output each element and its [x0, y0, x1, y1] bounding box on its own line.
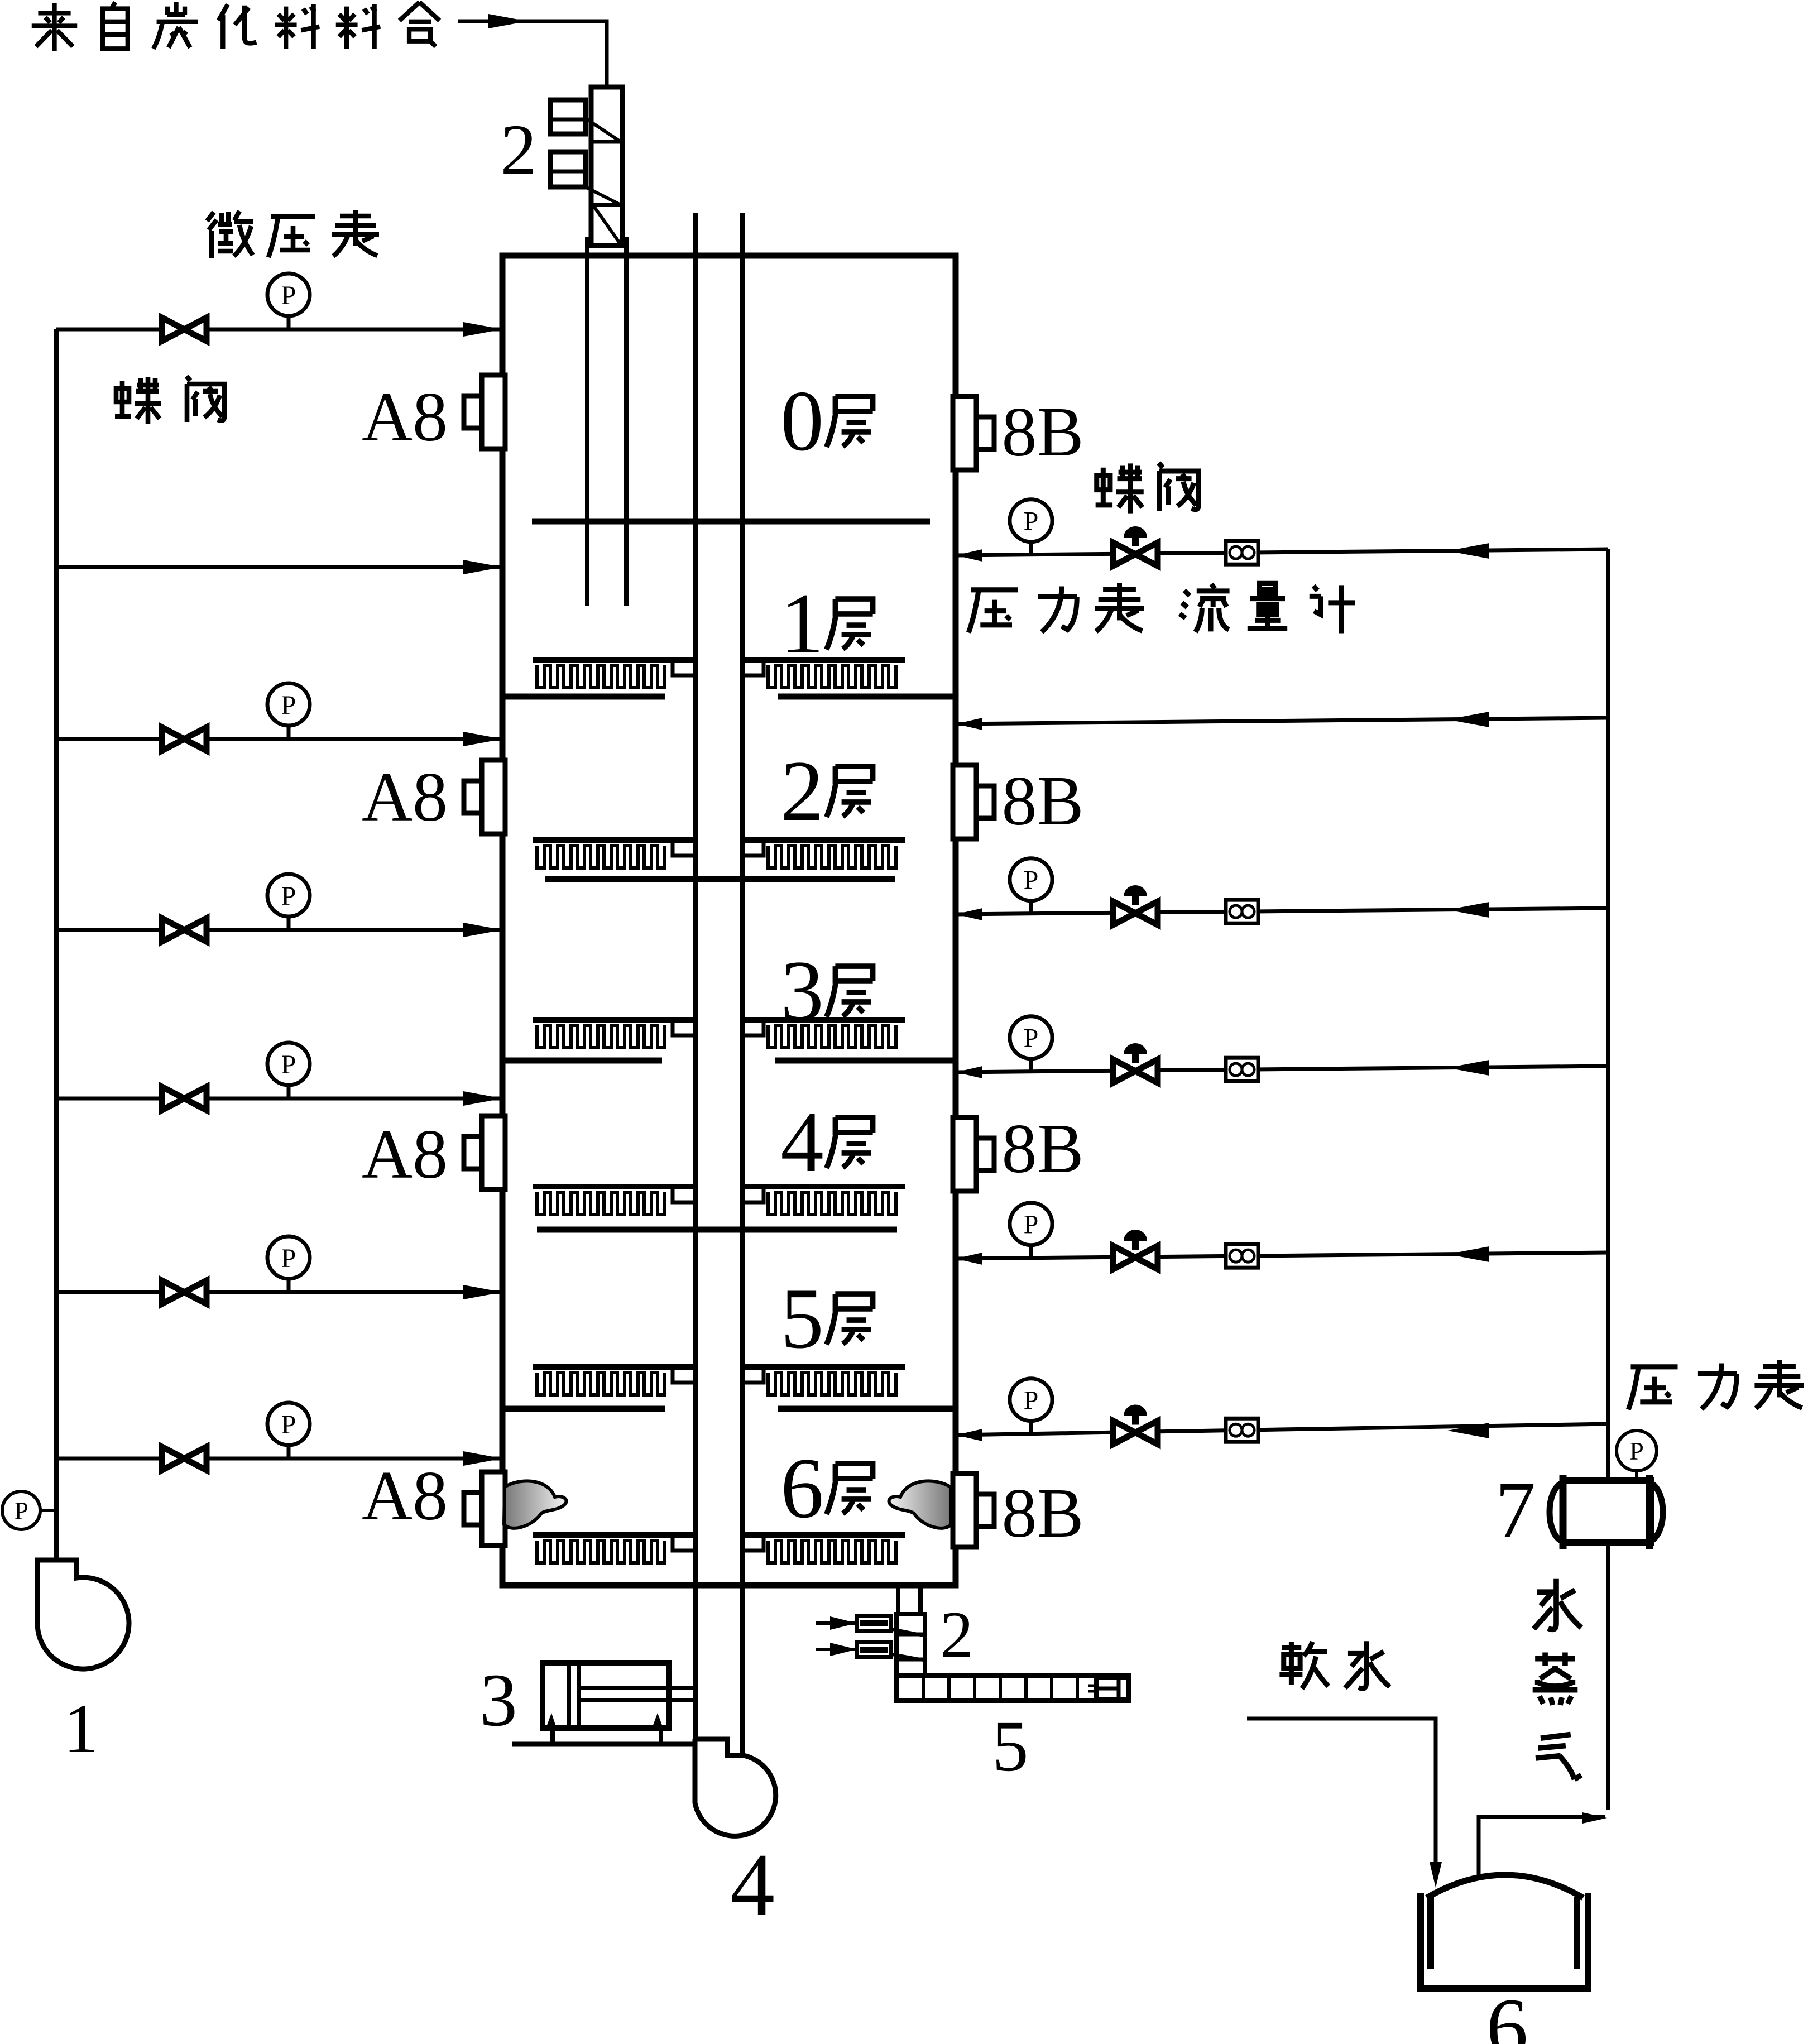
svg-text:P: P	[1024, 507, 1039, 536]
svg-text:1: 1	[64, 1691, 99, 1768]
svg-text:5: 5	[780, 1270, 824, 1366]
svg-text:2: 2	[940, 1597, 973, 1672]
svg-text:3: 3	[780, 943, 824, 1039]
svg-text:P: P	[1024, 1024, 1039, 1053]
svg-text:P: P	[281, 690, 296, 720]
svg-text:P: P	[1024, 1210, 1039, 1240]
svg-text:8B: 8B	[1001, 1110, 1083, 1188]
svg-text:P: P	[1024, 1386, 1039, 1416]
svg-text:A8: A8	[362, 1457, 448, 1535]
svg-text:P: P	[281, 1410, 296, 1440]
svg-text:0: 0	[780, 373, 824, 469]
svg-text:A8: A8	[362, 759, 448, 836]
svg-text:P: P	[1024, 866, 1039, 895]
svg-text:A8: A8	[362, 378, 448, 456]
svg-text:6: 6	[1486, 1981, 1528, 2044]
svg-text:1: 1	[780, 575, 824, 671]
svg-text:5: 5	[992, 1706, 1029, 1787]
svg-text:8B: 8B	[1001, 762, 1083, 840]
svg-text:8B: 8B	[1001, 394, 1083, 471]
svg-text:2: 2	[501, 110, 537, 190]
svg-text:8B: 8B	[1001, 1475, 1083, 1552]
svg-text:7: 7	[1495, 1465, 1536, 1554]
svg-text:P: P	[14, 1496, 28, 1525]
svg-text:P: P	[281, 881, 296, 911]
svg-text:P: P	[281, 1244, 296, 1273]
svg-text:A8: A8	[362, 1116, 448, 1193]
svg-text:P: P	[281, 281, 296, 310]
svg-text:4: 4	[780, 1094, 824, 1190]
svg-text:3: 3	[479, 1659, 517, 1742]
svg-text:6: 6	[780, 1440, 824, 1536]
svg-text:4: 4	[730, 1835, 775, 1934]
svg-text:P: P	[1629, 1437, 1644, 1465]
svg-text:P: P	[281, 1050, 296, 1079]
svg-text:2: 2	[780, 743, 824, 839]
